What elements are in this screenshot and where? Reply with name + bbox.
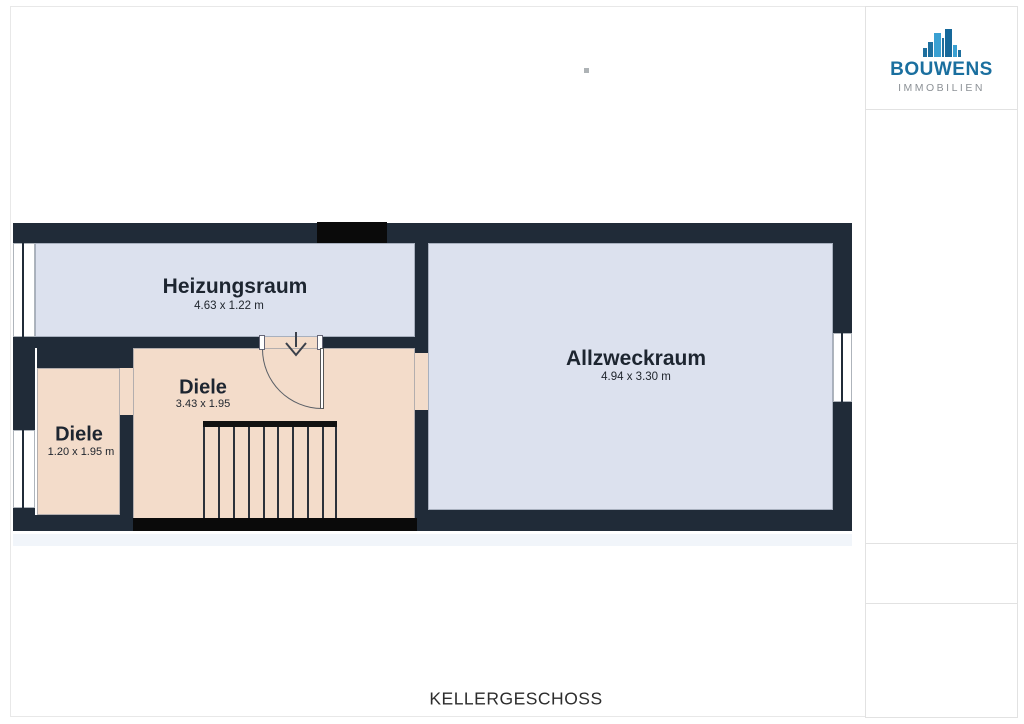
doorway-allzweckraum bbox=[415, 353, 428, 410]
floor-plan-page: Heizungsraum 4.63 x 1.22 m Allzweckraum … bbox=[0, 0, 1024, 724]
wall-divider-bottom bbox=[415, 410, 428, 531]
stairs-direction-arrow-icon bbox=[284, 330, 308, 358]
marker-dot bbox=[584, 68, 589, 73]
room-dimensions-heizungsraum: 4.63 x 1.22 m bbox=[194, 300, 264, 312]
stair-tread bbox=[248, 427, 250, 518]
room-dimensions-allzweckraum: 4.94 x 3.30 m bbox=[601, 371, 671, 383]
stair-tread bbox=[277, 427, 279, 518]
wall-divider-top bbox=[415, 243, 428, 353]
wall-mid-thick bbox=[37, 337, 133, 368]
room-label-allzweckraum: Allzweckraum bbox=[566, 347, 706, 371]
window-left-lower bbox=[13, 430, 35, 508]
stair-tread bbox=[218, 427, 220, 518]
wall-mid-right bbox=[322, 337, 428, 348]
room-dimensions-diele-klein: 1.20 x 1.95 m bbox=[48, 446, 115, 458]
stair-tread bbox=[322, 427, 324, 518]
stair-tread bbox=[263, 427, 265, 518]
door-jamb bbox=[259, 335, 265, 350]
door-opening-top bbox=[317, 222, 387, 243]
doorway-diele bbox=[120, 368, 133, 415]
plan-shadow bbox=[13, 534, 852, 546]
panel-section-empty bbox=[866, 110, 1017, 544]
floor-title: KELLERGESCHOSS bbox=[429, 689, 602, 710]
room-dimensions-diele: 3.43 x 1.95 bbox=[176, 398, 230, 410]
window-left-upper bbox=[13, 243, 35, 337]
wall-bottom-left bbox=[13, 515, 133, 531]
brand-name: BOUWENS bbox=[890, 59, 993, 81]
room-label-heizungsraum: Heizungsraum bbox=[163, 275, 308, 299]
stairs-bottom-bar bbox=[133, 518, 417, 531]
sidebar-panel: BOUWENS IMMOBILIEN bbox=[865, 6, 1018, 718]
stair-tread bbox=[335, 427, 337, 518]
panel-section-empty bbox=[866, 604, 1017, 717]
wall-diele-divider bbox=[120, 415, 133, 520]
stair-tread bbox=[203, 427, 205, 518]
stairs-top-edge bbox=[203, 421, 337, 427]
logo-panel: BOUWENS IMMOBILIEN bbox=[866, 7, 1017, 110]
window-mullion bbox=[22, 243, 24, 337]
stair-tread bbox=[292, 427, 294, 518]
stair-tread bbox=[233, 427, 235, 518]
wall-top bbox=[13, 223, 852, 243]
window-mullion bbox=[22, 430, 24, 508]
brand-subtitle: IMMOBILIEN bbox=[898, 82, 985, 94]
room-label-diele-klein: Diele bbox=[55, 424, 103, 447]
window-mullion bbox=[841, 333, 843, 402]
wall-bottom-right bbox=[417, 510, 852, 531]
room-label-diele: Diele bbox=[179, 377, 227, 400]
stair-tread bbox=[307, 427, 309, 518]
buildings-skyline-icon bbox=[923, 27, 961, 57]
panel-section-empty bbox=[866, 544, 1017, 604]
